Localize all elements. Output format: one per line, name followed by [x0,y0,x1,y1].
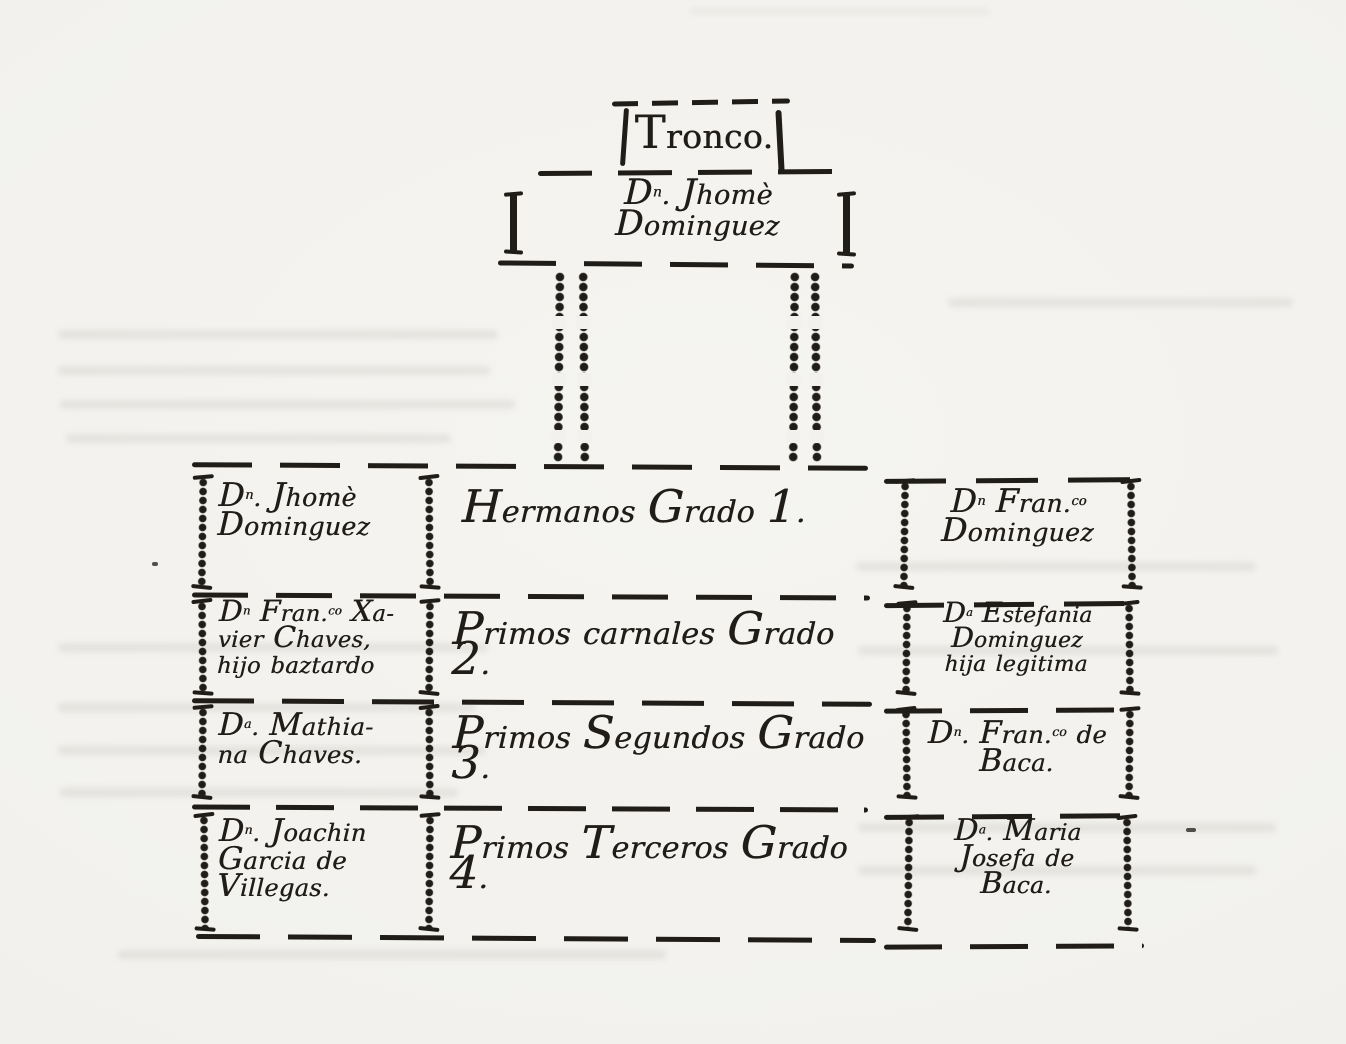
table-rule [192,805,868,813]
ghost-smudge [856,562,1256,571]
table-rule [192,593,870,601]
ghost-smudge [60,788,458,797]
row1-right-person: Dn Fran.co Dominguez [911,490,1125,548]
ghost-smudge [58,366,490,375]
descent-chain [576,272,592,462]
table-rule [884,943,1144,949]
row3-degree-label: Primos Segundos Grado 3. [451,724,883,784]
person-name-line: Villegas. [217,875,423,903]
person-name-line: Baca. [909,873,1124,899]
person-name-line: Baca. [909,750,1124,778]
cell-border-chain [196,478,209,586]
root-left-bar [510,194,517,252]
row1-degree-label: Hermanos Grado 1. [461,498,892,528]
row2-right-person: Da Estefania Dominguez hija legitima [909,604,1126,678]
ink-speck [1186,828,1196,832]
cell-border-chain [424,708,436,796]
person-name-line: Da Estefania [910,604,1125,629]
descent-chain [786,272,802,462]
cell-border-chain [196,602,208,692]
table-rule [196,934,876,943]
tronco-label: Tronco. [628,118,780,156]
person-name-line: na Chaves. [217,742,423,770]
table-rule [884,707,1142,713]
row3-left-person: Da. Mathia- na Chaves. [217,714,424,769]
person-name-line: Da. Mathia- [218,714,424,742]
row2-left-person: Dn Fran.co Xa- vier Chaves, hijo baztard… [217,602,430,680]
ghost-smudge [118,950,666,959]
row2-degree-label: Primos carnales Grado 2. [451,620,883,680]
row4-right-person: Da. Maria Josefa de Baca. [909,820,1126,899]
person-name-line: Dn. Fran.co de [910,722,1125,750]
person-name-line: Dominguez [217,513,423,542]
root-bottom-rule [498,260,854,268]
row1-left-person: Dn. Jhomè Dominguez [217,484,424,542]
cell-border-chain [1124,604,1136,692]
ghost-smudge [58,330,498,339]
cell-border-chain [196,708,208,796]
person-name-line: Dn. Jhomè [218,484,424,513]
cell-border-chain [1124,710,1136,796]
ghost-smudge [66,434,451,443]
root-person: Dn. Jhomè Dominguez [551,180,845,242]
root-person-line: Dn. Jhomè [552,180,845,211]
person-name-line: Dn. Joachin [218,820,424,848]
ink-speck [152,562,158,566]
person-name-line: Josefa de [910,846,1125,872]
ghost-smudge [948,298,1293,307]
person-name-line: Garcia de [218,848,424,876]
root-person-line: Dominguez [551,211,844,242]
cell-border-chain [198,816,210,928]
cell-border-chain [898,482,910,586]
person-name-line: hijo baztardo [217,654,428,680]
row4-left-person: Dn. Joachin Garcia de Villegas. [217,820,425,903]
ghost-smudge [60,400,515,409]
ghost-smudge [690,8,990,15]
person-name-line: Dominguez [910,629,1125,654]
person-name-line: vier Chaves, [218,628,429,654]
person-name-line: hija legitima [909,653,1124,678]
scanned-book-page: Tronco. Dn. Jhomè Dominguez Dn. Jhomè Do… [0,0,1346,1044]
table-rule [192,462,868,471]
person-name-line: Da. Maria [910,820,1125,846]
person-name-line: Dn Fran.co Xa- [218,602,429,628]
cell-border-chain [1125,482,1137,586]
cell-border-chain [423,816,435,928]
row3-right-person: Dn. Fran.co de Baca. [909,722,1125,777]
cell-border-chain [423,478,435,586]
row4-degree-label: Primos Terceros Grado 4. [449,834,881,894]
person-name-line: Dominguez [911,519,1124,548]
descent-chain [808,272,824,462]
descent-chain [551,272,567,462]
